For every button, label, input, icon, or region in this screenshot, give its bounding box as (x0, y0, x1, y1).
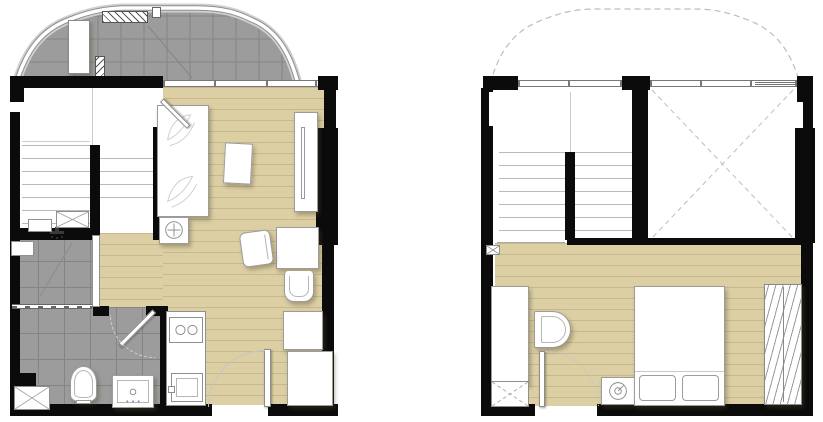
toilet (70, 366, 97, 402)
shower-door-line (40, 243, 72, 296)
wall-niche-box (11, 241, 34, 256)
toilet-cistern (76, 400, 91, 404)
double-bed (634, 286, 725, 406)
under-stair-box (28, 219, 52, 232)
duct-box (56, 211, 89, 228)
tv-console (294, 112, 318, 212)
pillow-right (682, 375, 719, 401)
upper-stair-run-right (575, 152, 632, 241)
u-wall-right-upper (803, 98, 813, 130)
u-mezzanine-edge-wall (567, 238, 803, 245)
two-burner-stove (169, 317, 203, 343)
upper-stair-run-left (499, 152, 565, 241)
wardrobe-with-hangers (764, 284, 802, 405)
u-stair-void-wall (632, 88, 648, 240)
tall-cabinet (287, 351, 333, 406)
window-mullion (620, 80, 622, 87)
upper-landing-line-v (570, 92, 571, 152)
u-service-shaft (491, 381, 529, 407)
u-window-inner-frame (755, 84, 795, 85)
bedside-stool (159, 217, 189, 244)
window-mullion (650, 80, 652, 87)
kitchen-sink (171, 373, 203, 402)
drain-marker (486, 245, 500, 255)
u-wall-right-lower (801, 243, 813, 406)
u-window-inner-frame (755, 82, 795, 83)
pillow-left (639, 375, 676, 401)
window-mullion (568, 80, 570, 87)
dining-chair-left (239, 229, 275, 268)
window-mullion (795, 80, 797, 87)
void-x-lines (652, 90, 793, 238)
window-mullion (700, 80, 702, 87)
dining-table (276, 227, 319, 269)
window-mullion (518, 80, 520, 87)
entrance-door-leaf (264, 349, 271, 407)
upper-balcony-dashed-outline (490, 9, 800, 84)
washing-machine (601, 377, 636, 405)
service-shaft (14, 386, 50, 410)
u-stair-divider-wall (565, 152, 575, 240)
tv-screen (301, 127, 305, 199)
window-mullion (750, 80, 752, 87)
desk (491, 286, 529, 385)
floor-plan-canvas (0, 0, 823, 422)
desk-chair (534, 311, 571, 348)
dining-chair-front (284, 271, 314, 302)
upper-stair-bottom-edge (497, 242, 565, 243)
u-wall-right-thick (795, 128, 815, 243)
sideboard-cabinet (283, 311, 323, 350)
vanity-sink (112, 375, 154, 408)
u-wall-left-notch (489, 92, 498, 126)
coffee-table (223, 142, 253, 184)
u-window-left (518, 80, 622, 87)
